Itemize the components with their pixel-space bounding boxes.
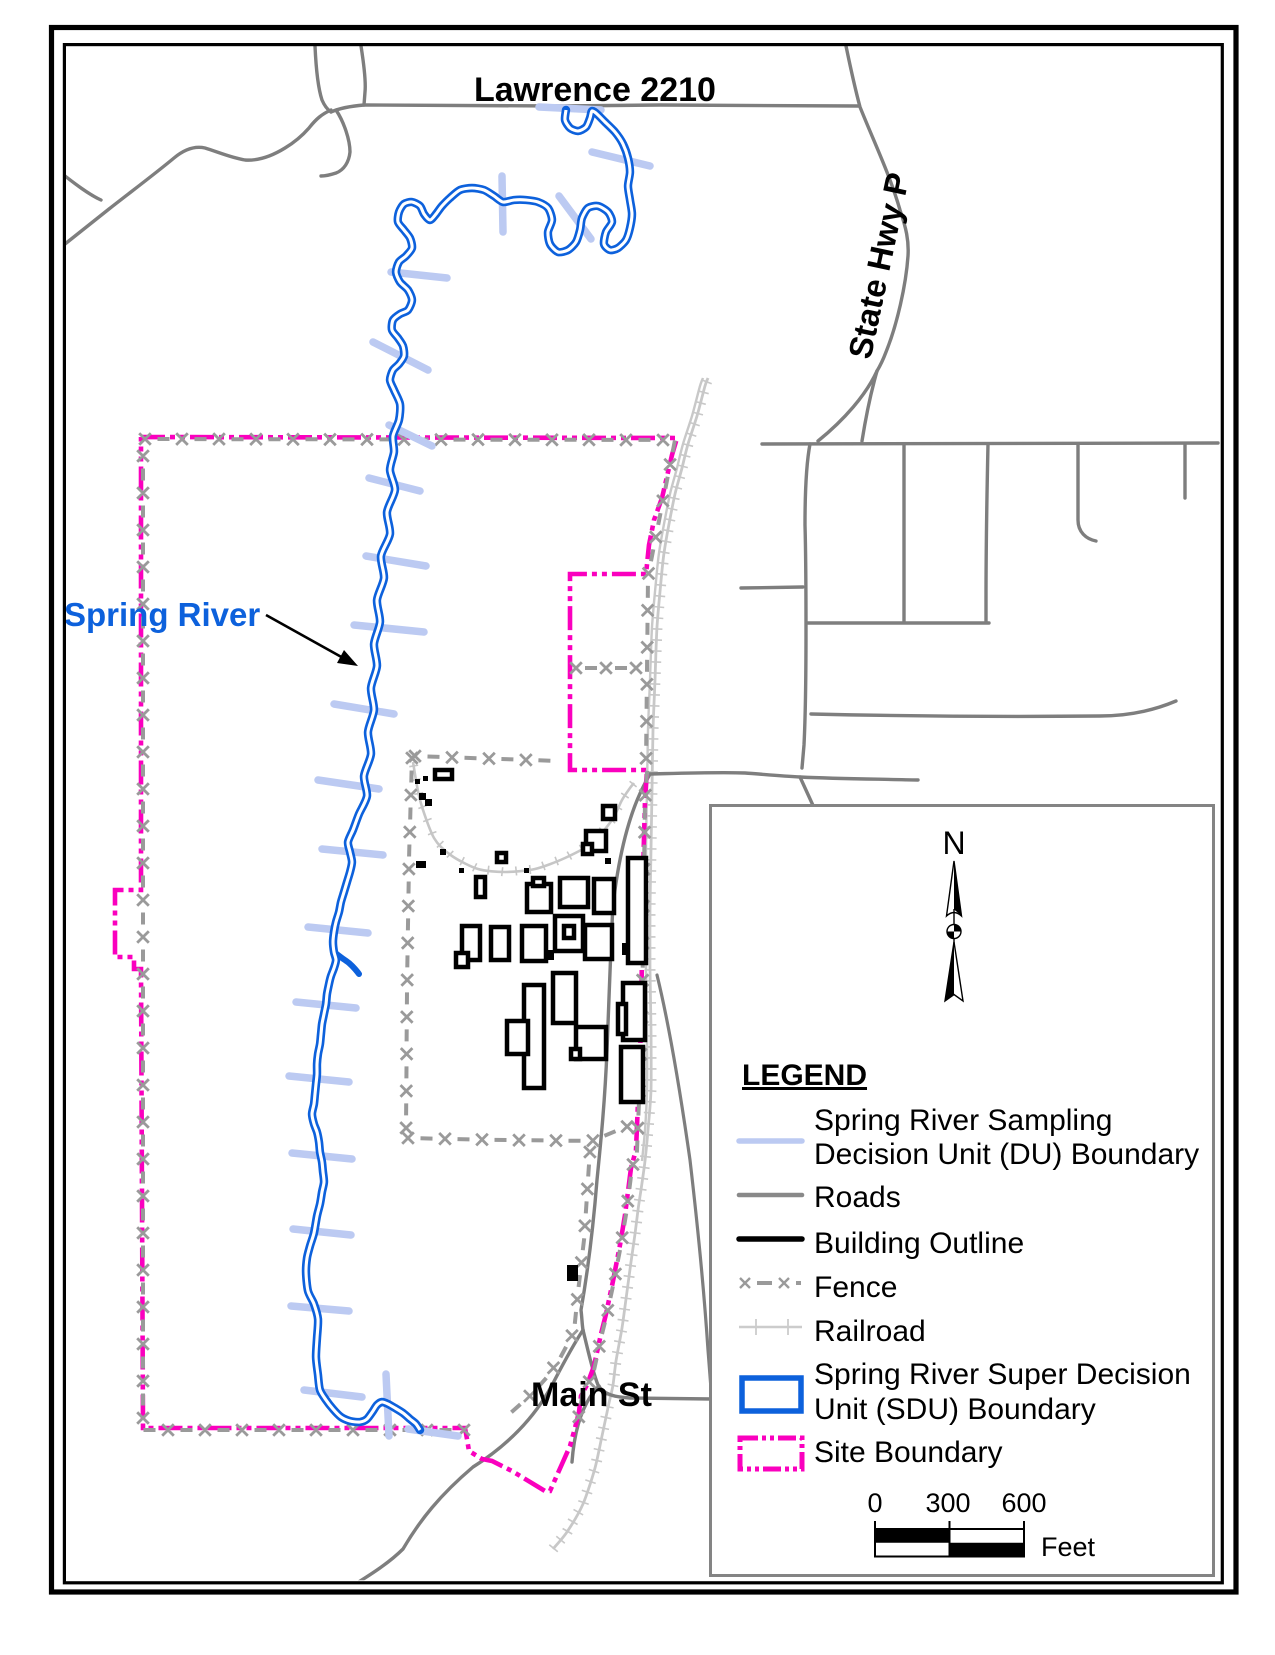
svg-text:Decision Unit (DU) Boundary: Decision Unit (DU) Boundary	[814, 1138, 1199, 1171]
svg-text:Fence: Fence	[814, 1271, 897, 1304]
svg-text:N: N	[942, 825, 965, 861]
svg-text:Spring River Sampling: Spring River Sampling	[814, 1104, 1112, 1137]
svg-text:Railroad: Railroad	[814, 1315, 926, 1348]
svg-text:Feet: Feet	[1041, 1532, 1096, 1562]
svg-text:0: 0	[867, 1488, 882, 1518]
svg-text:LEGEND: LEGEND	[742, 1059, 867, 1092]
svg-text:Spring River: Spring River	[64, 596, 260, 633]
svg-text:Lawrence 2210: Lawrence 2210	[474, 71, 716, 109]
svg-text:600: 600	[1001, 1488, 1046, 1518]
svg-text:Site Boundary: Site Boundary	[814, 1436, 1002, 1469]
svg-text:Roads: Roads	[814, 1181, 901, 1214]
svg-text:Building Outline: Building Outline	[814, 1227, 1024, 1260]
svg-text:Main St: Main St	[531, 1376, 652, 1414]
svg-text:Spring River Super Decision: Spring River Super Decision	[814, 1358, 1191, 1391]
svg-text:300: 300	[925, 1488, 970, 1518]
svg-text:Unit (SDU) Boundary: Unit (SDU) Boundary	[814, 1393, 1096, 1426]
